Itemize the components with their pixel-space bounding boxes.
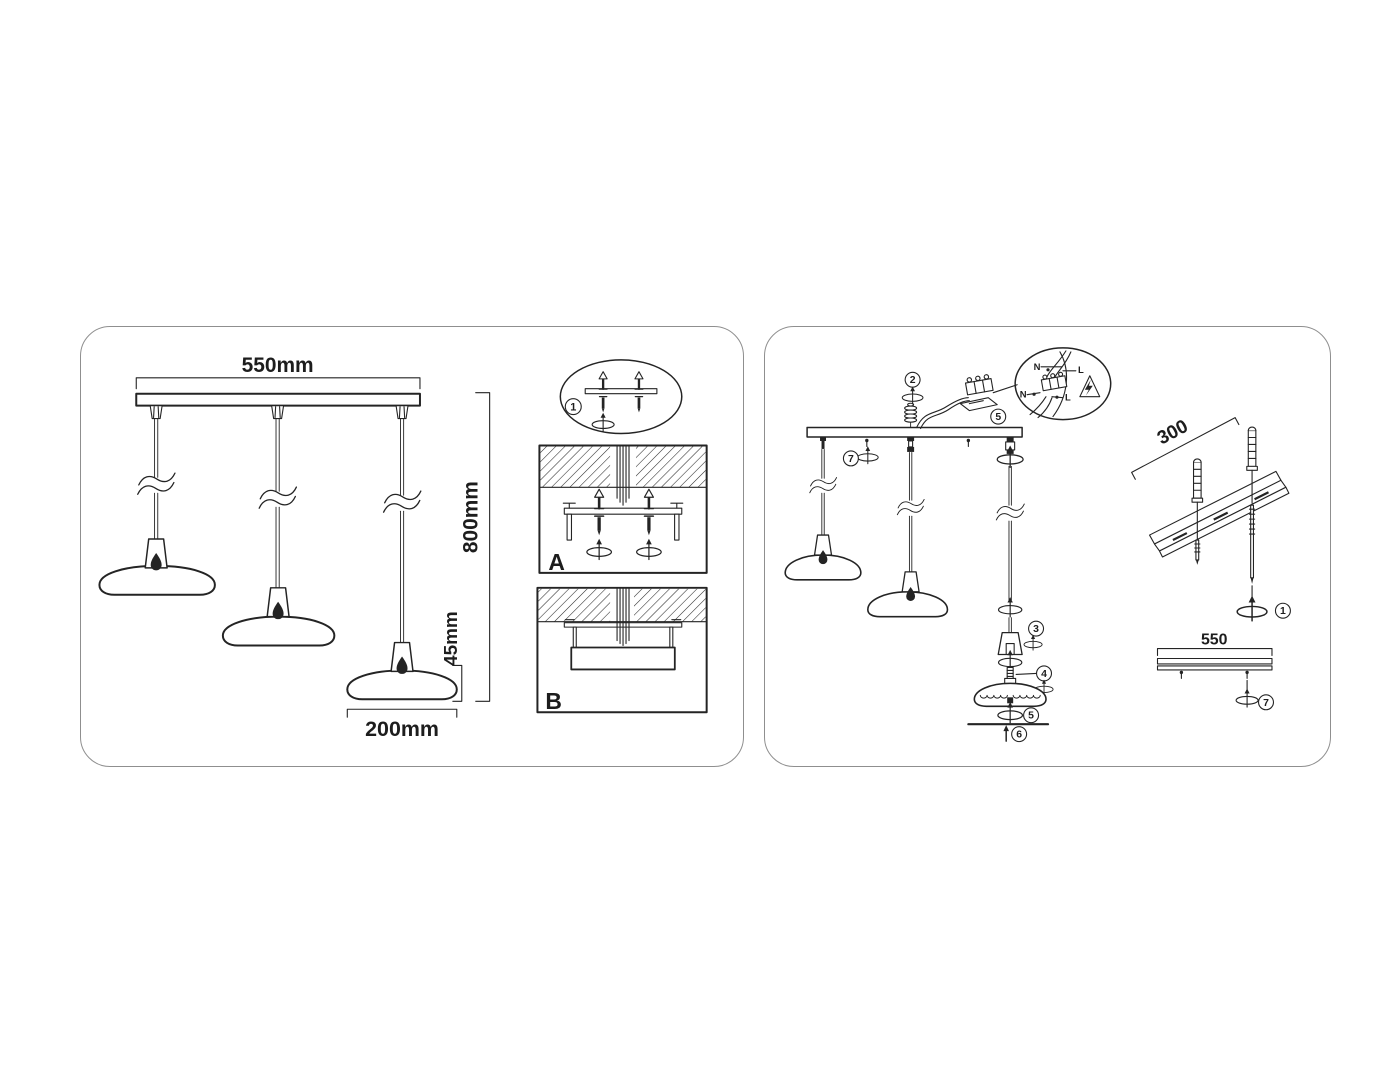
rotation-arrow-icon xyxy=(1024,635,1042,650)
assembly-pendant-2: 2 xyxy=(868,372,948,616)
terminal-block xyxy=(965,374,993,395)
panel-assembly-view: 7 xyxy=(764,326,1331,767)
bar-detail: 550 7 xyxy=(1157,632,1273,710)
svg-text:1: 1 xyxy=(570,402,576,414)
dimension-200mm: 200mm xyxy=(347,709,457,741)
terminal-block-small xyxy=(1041,372,1067,391)
detail-b-box: B xyxy=(537,588,706,714)
cord-break-icon xyxy=(380,489,424,515)
installation-manual-page: 550mm xyxy=(0,0,1400,1088)
svg-text:6: 6 xyxy=(1016,730,1022,741)
svg-text:5: 5 xyxy=(1028,711,1034,722)
callout-5-terminal: 5 xyxy=(991,409,1006,424)
callout-1: 1 xyxy=(565,399,581,415)
ceiling-hatch xyxy=(634,589,706,622)
rail-dimension-label: 300 xyxy=(1154,416,1192,449)
screw-icon xyxy=(635,397,642,413)
ceiling-hatch xyxy=(540,446,610,487)
bar-dimension-label: 550 xyxy=(1201,632,1228,649)
svg-text:7: 7 xyxy=(1263,698,1269,709)
svg-text:5: 5 xyxy=(995,412,1001,423)
bar-screw-icon xyxy=(1245,671,1248,679)
dimension-45mm-label: 45mm xyxy=(441,611,462,666)
pendant-2 xyxy=(223,419,334,646)
wire-l-bottom-label: L xyxy=(1065,393,1071,404)
wall-anchor-icon xyxy=(599,372,607,389)
assembly-view-drawing: 7 xyxy=(765,327,1330,766)
callout-4: 4 xyxy=(1016,666,1051,681)
mounting-rail xyxy=(1150,471,1289,557)
detail-b-label: B xyxy=(545,688,562,714)
rotation-arrow-icon xyxy=(857,446,878,464)
bar-screw-icon xyxy=(865,439,868,447)
rotation-arrow-icon xyxy=(1236,688,1258,707)
terminal-block-assembly: 5 xyxy=(917,374,1018,429)
shade-3 xyxy=(347,670,457,699)
callout-3: 3 xyxy=(1029,621,1044,636)
rotation-arrow-icon xyxy=(592,413,614,432)
electric-warning-icon xyxy=(1080,376,1100,397)
cord-break-icon xyxy=(807,476,838,494)
ceiling-hatch xyxy=(538,589,610,622)
dimension-800mm-label: 800mm xyxy=(460,481,483,553)
bar-screw-icon xyxy=(1180,671,1183,679)
canopy xyxy=(571,648,675,670)
cord-break-icon xyxy=(135,471,179,497)
shade-2 xyxy=(223,617,334,646)
cord-break-icon xyxy=(895,498,926,516)
ceiling-bar xyxy=(136,394,420,406)
dimension-800mm: 800mm xyxy=(460,393,490,702)
callout-7-bar: 7 xyxy=(843,446,878,466)
dimension-view-drawing: 550mm xyxy=(81,327,743,766)
wall-anchor-plug xyxy=(1192,459,1203,502)
ceiling-hatch xyxy=(636,446,706,487)
callout-7-bottom: 7 xyxy=(1259,695,1274,710)
svg-text:1: 1 xyxy=(1280,606,1286,617)
cord-break-icon xyxy=(994,502,1027,521)
dimension-550mm: 550mm xyxy=(136,354,420,389)
mounting-rail-detail: 300 xyxy=(1132,416,1291,621)
callout-6: 6 xyxy=(1003,725,1026,741)
svg-text:2: 2 xyxy=(910,375,916,386)
rotation-arrow-icon xyxy=(997,445,1023,467)
rotation-arrow-icon xyxy=(902,387,923,405)
svg-text:7: 7 xyxy=(848,454,854,465)
cord-break-icon xyxy=(256,485,300,511)
rail-screw-long xyxy=(1249,505,1254,584)
screw-icon xyxy=(600,397,607,413)
wire-n-bottom-label: N xyxy=(1020,390,1027,401)
rotation-arrow-icon xyxy=(1237,596,1267,621)
svg-text:4: 4 xyxy=(1041,669,1047,680)
pendant-1 xyxy=(99,419,214,595)
wall-anchor-icon xyxy=(635,372,643,389)
wire-n-top-label: N xyxy=(1034,362,1041,373)
wiring-detail-bubble: N L N L xyxy=(1015,348,1111,420)
terminal-plate xyxy=(960,398,997,411)
callout-2: 2 xyxy=(905,372,920,387)
rail-screw-short xyxy=(1195,540,1200,565)
ceiling-bar xyxy=(807,428,1022,437)
detail-step1-bracket: 1 xyxy=(560,360,681,434)
panel-dimension-view: 550mm xyxy=(80,326,744,767)
detail-a-box: A xyxy=(539,445,706,574)
dimension-550mm-label: 550mm xyxy=(242,354,314,377)
strain-relief-rings xyxy=(905,403,917,422)
callout-1-rail: 1 xyxy=(1275,603,1290,618)
dimension-200mm-label: 200mm xyxy=(365,717,439,741)
mounting-bracket xyxy=(564,508,681,514)
rotation-arrow-icon xyxy=(999,597,1022,617)
svg-text:3: 3 xyxy=(1033,624,1039,635)
bar-screw-icon xyxy=(967,439,970,447)
cord-glands xyxy=(150,406,408,419)
detail-a-label: A xyxy=(548,549,565,575)
assembly-pendant-3-exploded: 3 4 xyxy=(968,437,1053,742)
wire-l-top-label: L xyxy=(1078,365,1084,376)
wall-anchor-plug xyxy=(1247,427,1258,470)
